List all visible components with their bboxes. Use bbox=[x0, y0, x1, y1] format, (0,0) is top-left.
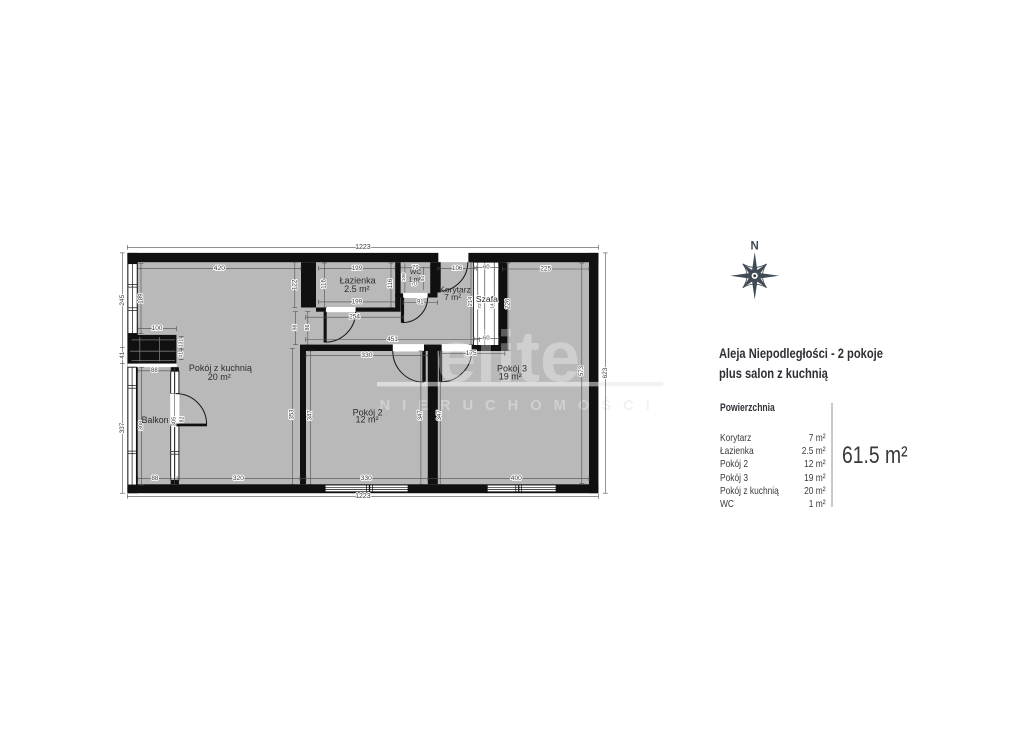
svg-text:337: 337 bbox=[119, 422, 126, 433]
svg-text:225: 225 bbox=[540, 266, 551, 273]
svg-text:320: 320 bbox=[233, 475, 244, 482]
svg-text:20 m²: 20 m² bbox=[208, 372, 231, 382]
svg-text:N: N bbox=[751, 241, 759, 253]
svg-text:189: 189 bbox=[138, 293, 145, 304]
svg-text:347: 347 bbox=[418, 410, 424, 421]
svg-text:226: 226 bbox=[505, 298, 512, 309]
svg-text:330: 330 bbox=[361, 475, 372, 482]
svg-text:214: 214 bbox=[468, 296, 474, 306]
svg-text:122: 122 bbox=[291, 279, 298, 290]
svg-text:82: 82 bbox=[180, 417, 186, 423]
svg-text:347: 347 bbox=[437, 410, 443, 421]
svg-text:19 m²: 19 m² bbox=[499, 371, 522, 381]
svg-text:347: 347 bbox=[308, 410, 314, 421]
svg-text:420: 420 bbox=[214, 265, 226, 272]
svg-text:98: 98 bbox=[293, 325, 299, 331]
svg-text:Szafa: Szafa bbox=[476, 294, 498, 304]
svg-text:88: 88 bbox=[151, 368, 158, 374]
svg-text:305: 305 bbox=[171, 417, 177, 427]
svg-text:1223: 1223 bbox=[355, 493, 371, 500]
svg-text:451: 451 bbox=[387, 336, 398, 343]
svg-text:254: 254 bbox=[349, 314, 360, 321]
svg-text:Balkon: Balkon bbox=[142, 415, 169, 425]
svg-text:108: 108 bbox=[401, 273, 407, 281]
svg-text:131: 131 bbox=[178, 339, 184, 348]
svg-text:7 m²: 7 m² bbox=[444, 292, 461, 302]
svg-text:245: 245 bbox=[119, 294, 126, 305]
svg-text:12 m²: 12 m² bbox=[355, 415, 378, 425]
svg-text:WC: WC bbox=[410, 269, 421, 276]
svg-text:41: 41 bbox=[119, 351, 126, 358]
svg-text:60: 60 bbox=[483, 336, 489, 342]
svg-text:353: 353 bbox=[289, 409, 295, 420]
svg-text:400: 400 bbox=[511, 475, 522, 482]
svg-text:106: 106 bbox=[452, 265, 463, 272]
svg-text:91: 91 bbox=[417, 300, 424, 306]
svg-text:116: 116 bbox=[321, 279, 327, 289]
svg-text:1223: 1223 bbox=[355, 244, 371, 251]
svg-text:199: 199 bbox=[352, 265, 363, 272]
svg-text:2.5 m²: 2.5 m² bbox=[344, 284, 370, 294]
svg-text:573: 573 bbox=[579, 365, 585, 376]
svg-text:1 m²: 1 m² bbox=[409, 276, 421, 283]
svg-text:86: 86 bbox=[305, 325, 311, 331]
svg-text:116: 116 bbox=[388, 278, 394, 288]
svg-text:175: 175 bbox=[466, 350, 477, 357]
svg-text:88: 88 bbox=[151, 475, 159, 482]
svg-text:199: 199 bbox=[352, 298, 363, 305]
svg-text:60: 60 bbox=[483, 265, 489, 271]
svg-text:100: 100 bbox=[152, 325, 163, 332]
svg-text:41: 41 bbox=[178, 352, 184, 358]
svg-text:623: 623 bbox=[602, 367, 609, 378]
svg-text:330: 330 bbox=[361, 352, 373, 359]
